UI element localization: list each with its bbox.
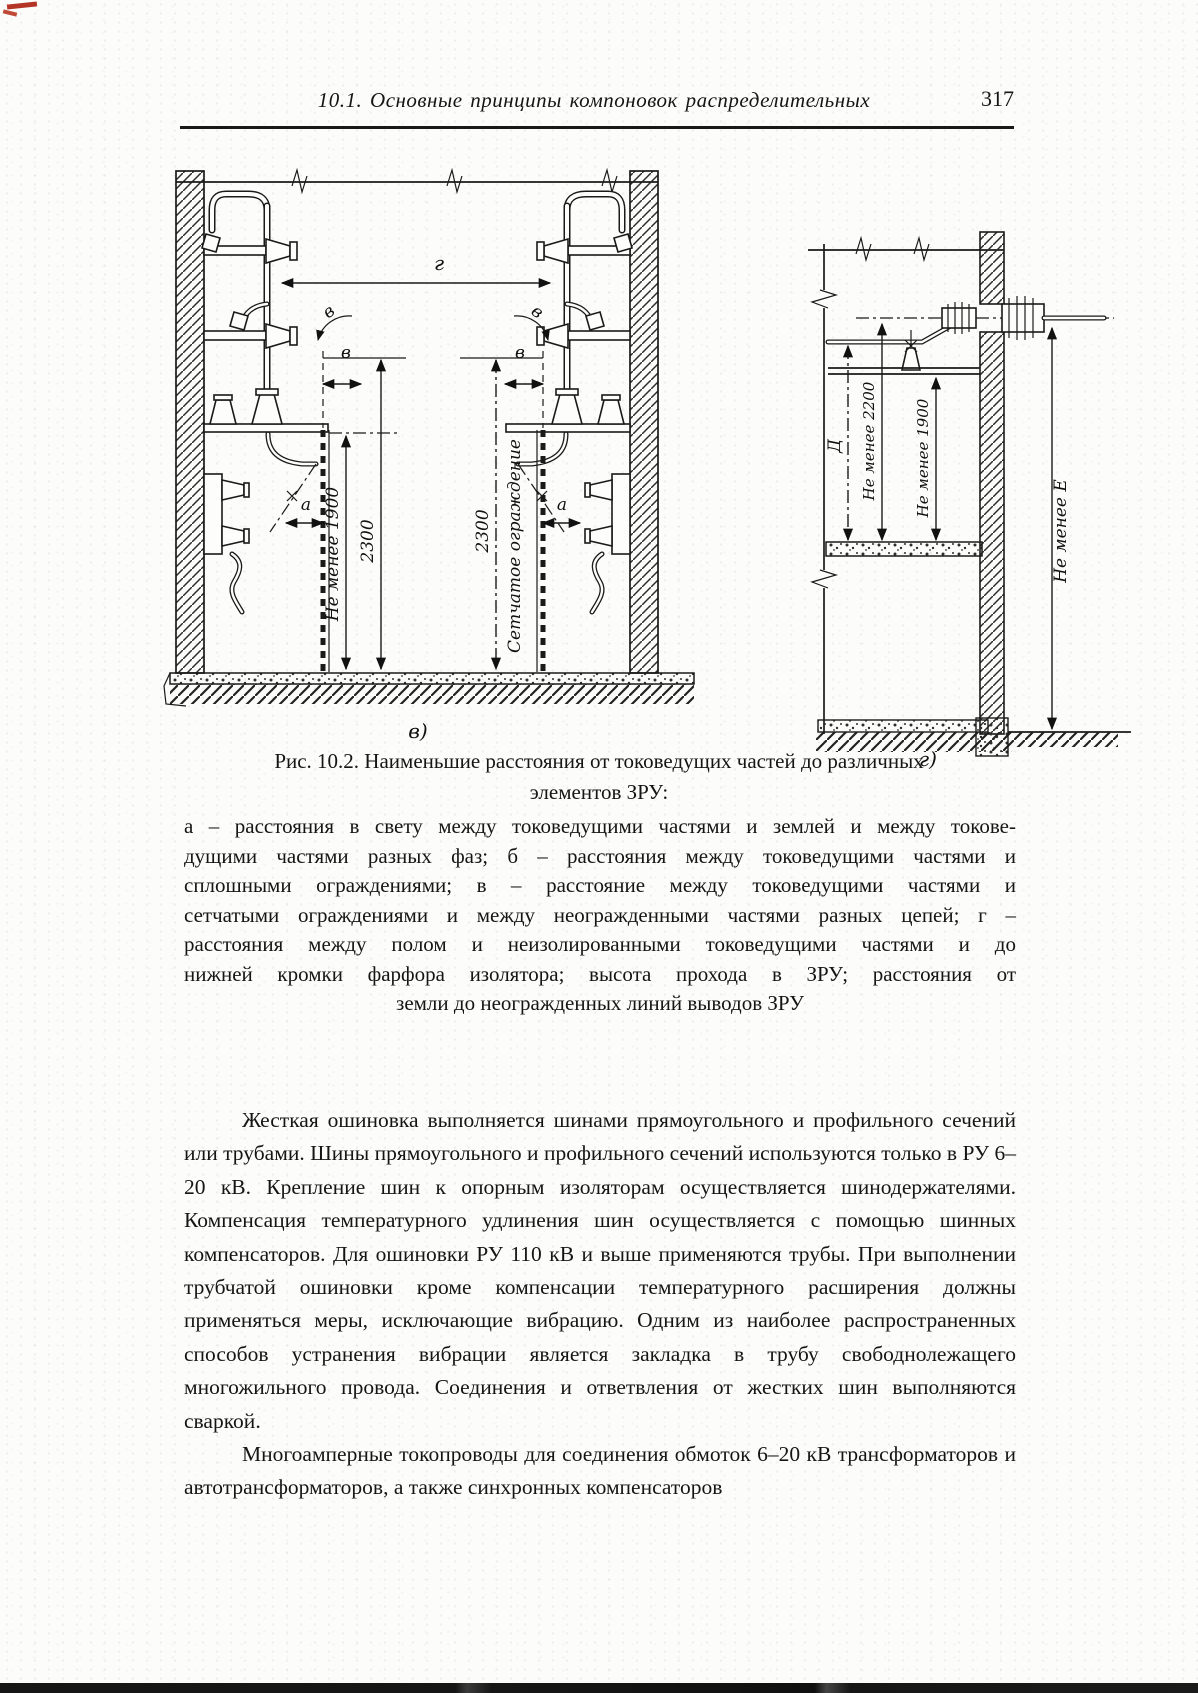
paragraph: Многоамперные токопроводы для соединения… [184,1438,1016,1505]
dimension-2200: Не менее 2200 [860,324,882,540]
dimension-gap-g: г [282,251,550,283]
label-dim-v: в [515,343,525,363]
dimension-e: Не менее Е [1051,328,1071,729]
body-text: Жесткая ошиновка выполняется шинами прям… [184,1104,1016,1505]
caption-line-1: Рис. 10.2. Наименьшие расстояния от токо… [184,746,1014,777]
label-min-1900: Не менее 1900 [914,398,932,518]
label-dim-d: Д [825,438,845,454]
scanned-book-page: 10.1. Основные принципы компоновок распр… [0,0,1198,1693]
section-g: Д Не менее 2200 Не менее 1900 [808,232,1131,771]
label-dim-v: в [527,301,547,323]
outer-wall-upper [980,232,1004,304]
sublabel-v: в) [408,719,427,743]
label-mesh-fence: Сетчатое ограждение [505,439,525,653]
left-boundary [812,244,836,734]
right-wall [630,171,658,673]
legend-line: сетчатыми ограждениями и между неогражде… [184,901,1016,931]
concrete-slab [826,542,982,556]
label-min-e: Не менее Е [1051,479,1071,584]
label-2300: 2300 [473,509,493,553]
ceiling-line [808,238,1004,260]
support-insulator [902,330,920,370]
dimension-v-left: в в [318,301,361,384]
figure-diagram: г в в в в а [156,146,1196,774]
header-rule [180,126,1014,129]
dimension-1900-right: Не менее 1900 [914,378,936,540]
legend-line: дущими частями разных фаз; б – расстояни… [184,842,1016,872]
left-wall [176,171,204,673]
mesh-fence-right [537,351,543,672]
label-2300: 2300 [358,519,378,563]
paragraph: Жесткая ошиновка выполняется шинами прям… [184,1104,1016,1438]
legend-line: а – расстояния в свету между токоведущим… [184,812,1016,842]
label-dim-v: в [319,301,339,323]
legend-line: сплошными ограждениями; в – расстояние м… [184,871,1016,901]
legend-line: расстояния между полом и неизолированным… [184,930,1016,960]
dimension-2300-left: 2300 [358,360,381,669]
label-dim-a: а [557,495,567,515]
dimension-d: Д [825,346,848,540]
dimension-2300-center: 2300 [473,360,496,669]
label-min-2200: Не менее 2200 [860,381,878,501]
section-v: г в в в в а [164,170,694,743]
label-dim-v: в [341,343,351,363]
outer-wall-lower [980,332,1004,734]
legend-line: нижней кромки фарфора изолятора; высота … [184,960,1016,990]
label-dim-g: г [434,251,444,275]
scan-red-mark [3,9,18,16]
busbar-assembly [202,194,328,612]
scan-edge-artifact [0,1683,1198,1693]
page-header: 10.1. Основные принципы компоновок распр… [184,88,1014,122]
wall-bushing [828,296,1114,342]
floor [164,673,694,706]
legend-line: земли до неогражденных линий выводов ЗРУ [184,989,1016,1019]
page-number: 317 [981,86,1014,112]
label-min-1900: Не менее 1900 [323,487,343,623]
dimension-1900-left: Не менее 1900 [323,436,346,669]
caption-line-2: элементов ЗРУ: [184,777,1014,808]
figure-caption: Рис. 10.2. Наименьшие расстояния от токо… [184,746,1014,808]
running-title: 10.1. Основные принципы компоновок распр… [284,88,904,113]
scan-red-mark [7,1,37,9]
label-dim-a: а [301,495,311,515]
figure-10-2: г в в в в а [156,146,1196,774]
figure-legend: а – расстояния в свету между токоведущим… [184,812,1016,1019]
ceiling-line [176,170,658,192]
